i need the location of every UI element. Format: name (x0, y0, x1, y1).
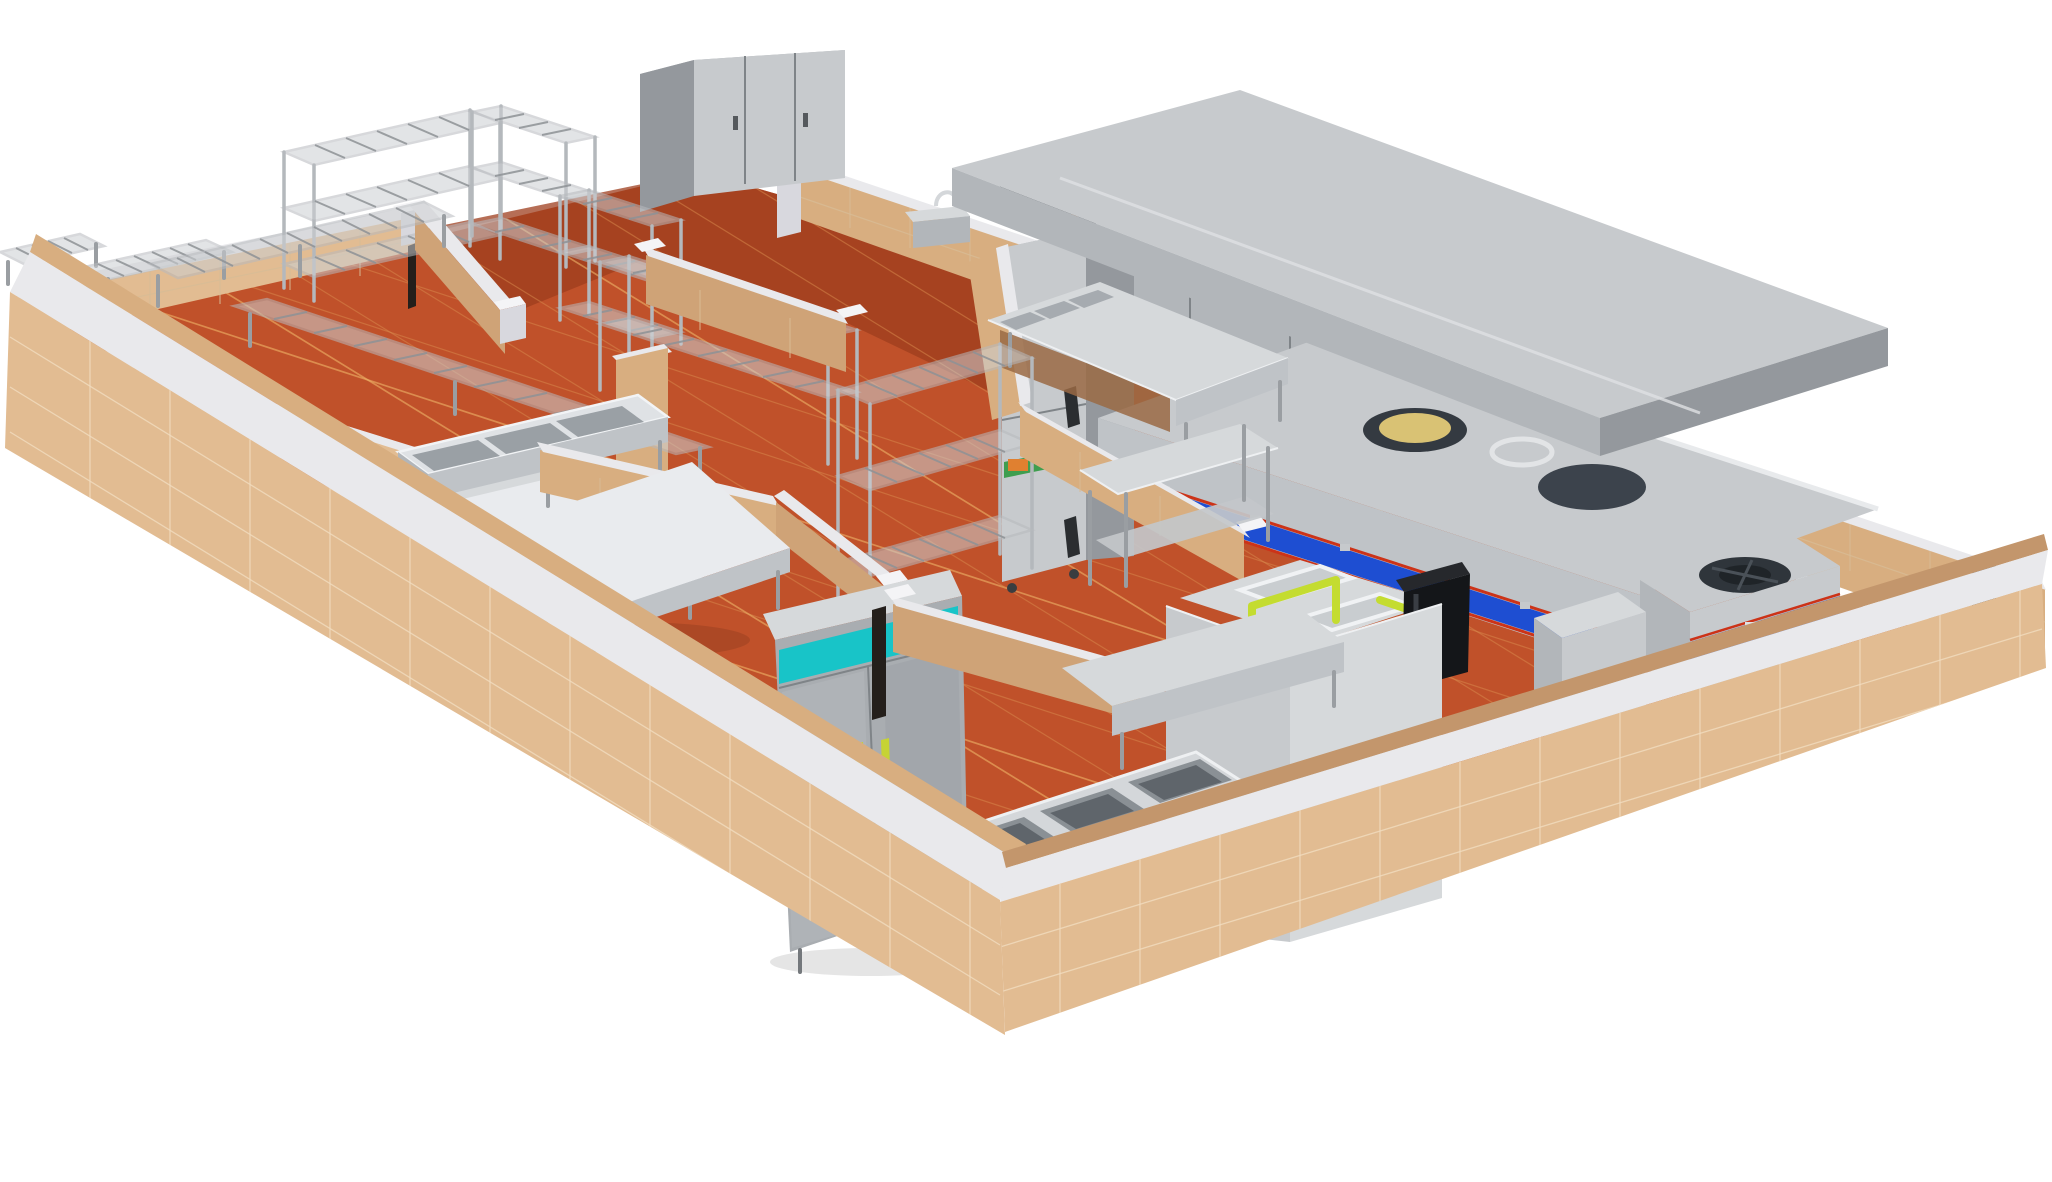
cabinet-handle-icon (803, 113, 808, 127)
caster-wheel-icon (1069, 569, 1079, 579)
griddle-plate (1538, 464, 1646, 510)
cabinet-front (694, 50, 845, 196)
cabinet-side (640, 60, 694, 212)
steamer-label-tag (1008, 459, 1028, 471)
cabinet-handle-icon (733, 116, 738, 130)
kitchen-scene-svg (0, 0, 2052, 1182)
caster-wheel-icon (1007, 583, 1017, 593)
range-band-rivet (1520, 602, 1530, 609)
partition-end-block-face (500, 304, 526, 344)
kitchen-3d-render (0, 0, 2052, 1182)
door-slot (872, 606, 886, 720)
wok-burner-food (1379, 413, 1451, 443)
range-band-rivet (1340, 544, 1350, 551)
